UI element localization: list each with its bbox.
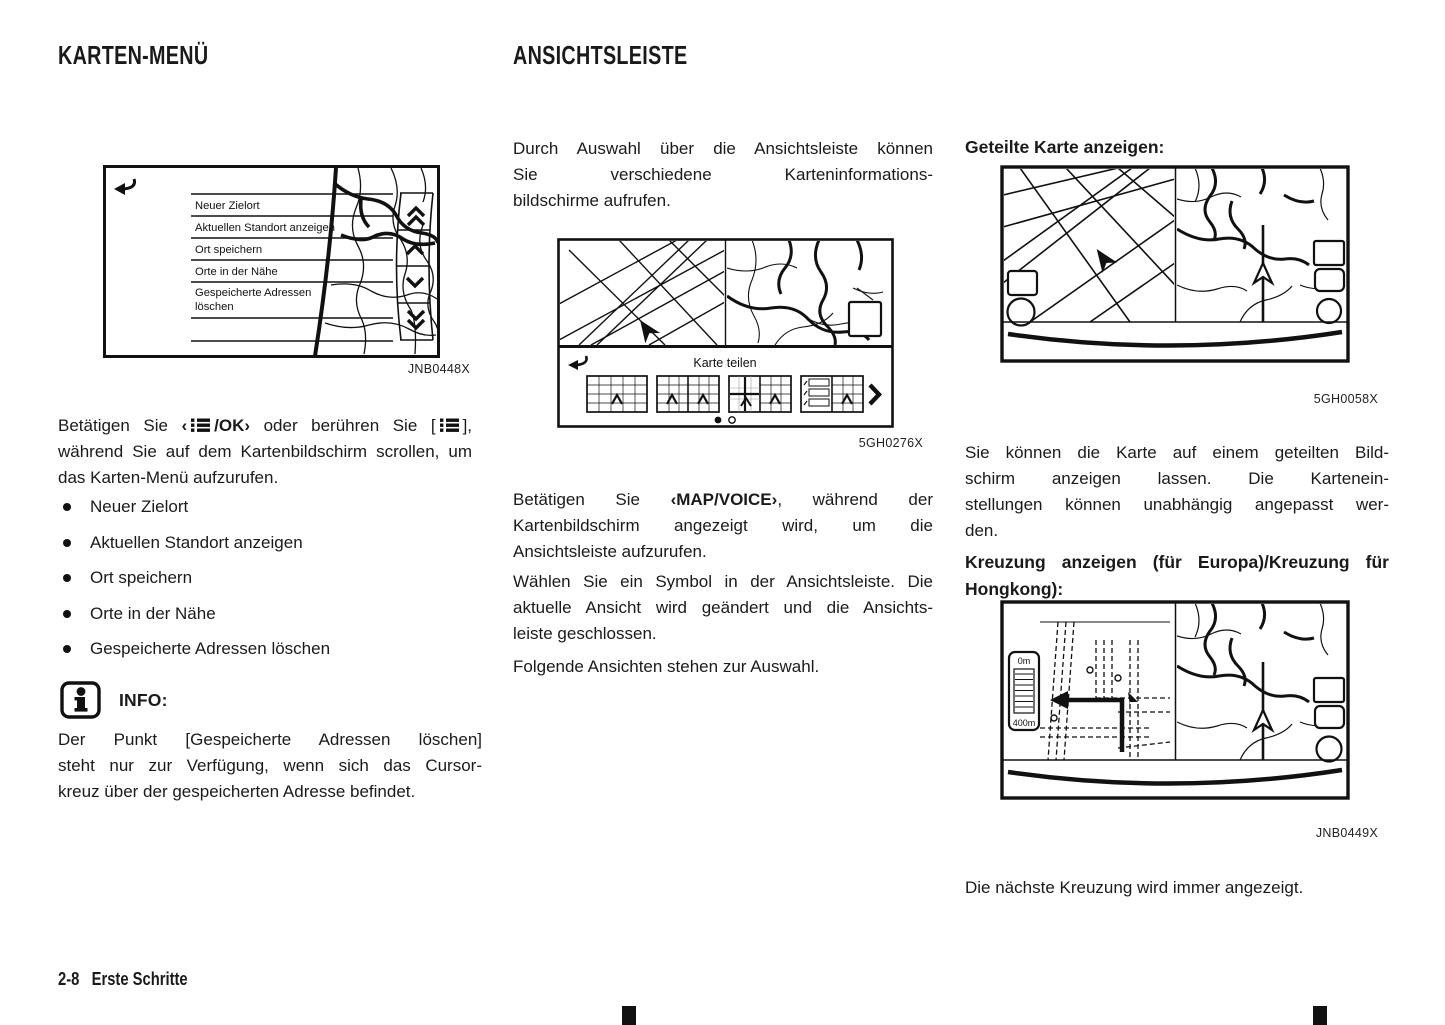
paragraph-karten-menu-intro: Betätigen Sie ‹/OK› oder berühren Sie []… [58,413,472,491]
text-line: aktuelle Ansicht wird geändert und die A… [513,595,933,621]
text-line: schirm anzeigen lassen. Die Kartenein- [965,466,1389,492]
list-item-label: Ort speichern [90,568,192,588]
scale-top-label: 0m [1018,656,1031,666]
text-line: Hongkong): [965,576,1389,603]
list-menu-icon [191,418,210,432]
paragraph-symbol-select: Wählen Sie ein Symbol in der Ansichtslei… [513,569,933,647]
text-line: Kartenbildschirm angezeigt wird, um die [513,513,933,539]
bullet-icon [63,503,71,511]
bullet-icon [63,574,71,582]
info-icon [60,681,101,719]
info-note-text: Der Punkt [Gespeicherte Adressen löschen… [58,727,482,805]
paragraph-available-views: Folgende Ansichten stehen zur Auswahl. [513,654,933,680]
info-label: INFO: [119,690,168,711]
menu-item-label: Gespeicherte Adressen [195,287,311,299]
list-item: Neuer Zielort [63,494,483,520]
figure-split-map [1000,165,1350,368]
text-line: leiste geschlossen. [513,621,933,647]
text-segment: oder berühren Sie [ [250,416,436,435]
list-item-label: Orte in der Nähe [90,604,216,624]
split-map-illustration [1000,165,1350,363]
info-note-header: INFO: [60,681,168,719]
heading-karten-menu: KARTEN-MENÜ [58,40,208,71]
map-button-circle [1317,737,1342,762]
page-dot-active [715,417,722,424]
bullet-icon [63,645,71,653]
panel-title: Karte teilen [693,356,756,370]
figure-caption: JNB0449X [1000,826,1378,840]
heading-ansichtsleiste: ANSICHTSLEISTE [513,40,687,71]
list-menu-icon [440,418,459,432]
print-registration-mark [622,1006,636,1025]
list-item: Ort speichern [63,565,483,591]
figure-view-bar-screen: Karte teilen [557,238,894,433]
text-line: Der Punkt [Gespeicherte Adressen löschen… [58,727,482,753]
print-registration-mark [1313,1006,1327,1025]
map-button-box [1314,241,1344,265]
text-line: kreuz über der gespeicherten Adresse bef… [58,779,482,805]
paragraph-map-voice: Betätigen Sie ‹MAP/VOICE›, während der K… [513,487,933,565]
text-line: Wählen Sie ein Symbol in der Ansichtslei… [513,569,933,595]
text-line: Sie verschiedene Karteninformations- [513,162,933,188]
text-line: bildschirme aufrufen. [513,188,933,214]
figure-caption: 5GH0058X [1000,392,1378,406]
list-item-label: Neuer Zielort [90,497,188,517]
footer-section-title: Erste Schritte [92,969,188,989]
map-button-box [1315,706,1344,728]
figure-caption: 5GH0276X [557,436,923,450]
list-item-label: Aktuellen Standort anzeigen [90,533,303,553]
figure-junction-view: 0m 400m [1000,600,1350,805]
text-line: Betätigen Sie ‹MAP/VOICE›, während der [513,487,933,513]
subheading-split-map: Geteilte Karte anzeigen: [965,137,1164,158]
map-button-circle [1317,299,1341,323]
map-menu-screen-illustration: Neuer Zielort Aktuellen Standort anzeige… [103,165,440,358]
scale-bottom-label: 400m [1013,718,1036,728]
text-line: Ansichtsleiste aufzurufen. [513,539,933,565]
map-button-box [1008,271,1037,295]
page-footer: 2-8Erste Schritte [58,969,188,990]
page-number: 2-8 [58,969,79,989]
junction-view-illustration: 0m 400m [1000,600,1350,800]
map-button-box [1314,678,1344,702]
text-segment: /OK› [214,416,250,435]
list-item-label: Gespeicherte Adressen löschen [90,639,330,659]
figure-caption: JNB0448X [103,362,470,376]
bullet-icon [63,539,71,547]
text-line: Durch Auswahl über die Ansichtsleiste kö… [513,136,933,162]
view-bar-illustration: Karte teilen [557,238,894,428]
subheading-junction: Kreuzung anzeigen (für Europa)/Kreuzung … [965,549,1389,603]
text-line: stellungen können unabhängig angepasst w… [965,492,1389,518]
text-segment: ‹ [181,416,187,435]
list-item: Gespeicherte Adressen löschen [63,636,483,662]
menu-item-label: Aktuellen Standort anzeigen [195,222,335,234]
text-line: den. [965,518,1389,544]
text-line: steht nur zur Verfügung, wenn sich das C… [58,753,482,779]
page-dot-inactive [729,417,735,423]
bullet-icon [63,610,71,618]
paragraph-ansichtsleiste-intro: Durch Auswahl über die Ansichtsleiste kö… [513,136,933,214]
list-item: Aktuellen Standort anzeigen [63,530,483,556]
menu-item-label: Orte in der Nähe [195,266,278,278]
map-callout-box [849,302,881,336]
text-line: Kreuzung anzeigen (für Europa)/Kreuzung … [965,549,1389,576]
menu-item-label: löschen [195,301,234,313]
text-segment: Betätigen Sie [58,416,181,435]
list-item: Orte in der Nähe [63,601,483,627]
paragraph-split-map: Sie können die Karte auf einem geteilten… [965,440,1389,544]
paragraph-next-junction: Die nächste Kreuzung wird immer angezeig… [965,875,1389,901]
text-line: Sie können die Karte auf einem geteilten… [965,440,1389,466]
menu-option-list: Neuer Zielort Aktuellen Standort anzeige… [63,494,483,672]
manual-page: { "left": { "heading": "KARTEN-MENÜ", "f… [0,0,1445,1025]
menu-item-label: Ort speichern [195,244,262,256]
map-button-box [1315,269,1344,291]
figure-map-menu-screen: Neuer Zielort Aktuellen Standort anzeige… [103,165,440,363]
menu-item-label: Neuer Zielort [195,200,261,212]
distance-scale: 0m 400m [1009,652,1039,730]
